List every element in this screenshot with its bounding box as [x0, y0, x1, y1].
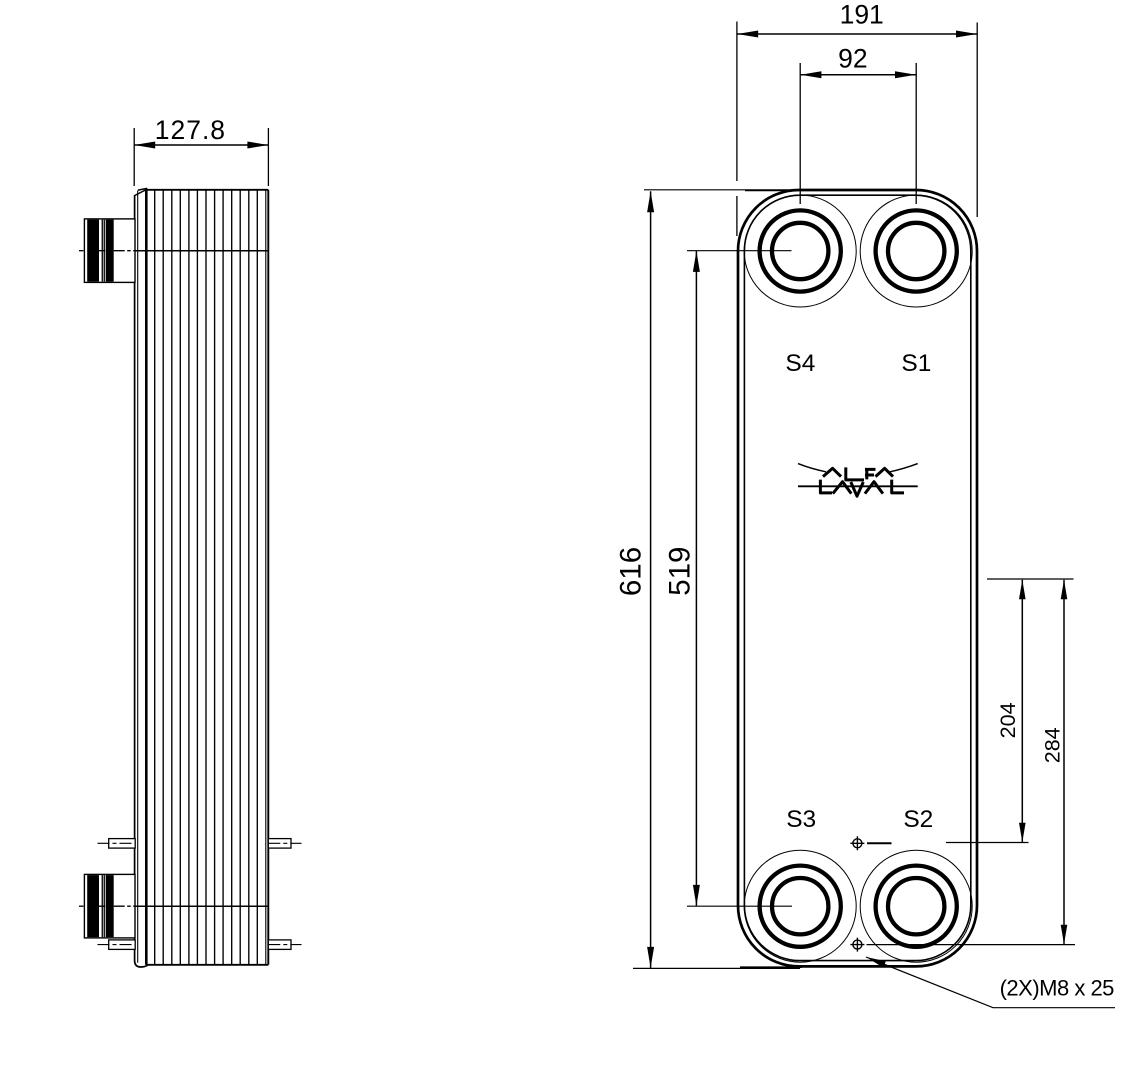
- svg-text:284: 284: [1041, 727, 1065, 763]
- svg-text:204: 204: [996, 702, 1020, 738]
- svg-text:S3: S3: [786, 806, 816, 833]
- svg-text:127.8: 127.8: [155, 115, 226, 145]
- svg-text:92: 92: [838, 44, 867, 74]
- svg-text:S1: S1: [901, 350, 931, 377]
- svg-text:616: 616: [615, 547, 648, 596]
- svg-text:519: 519: [664, 547, 697, 596]
- svg-text:S2: S2: [903, 806, 933, 833]
- svg-text:191: 191: [840, 0, 884, 30]
- svg-text:(2X)M8 x 25: (2X)M8 x 25: [1000, 976, 1115, 1001]
- svg-text:S4: S4: [785, 350, 815, 377]
